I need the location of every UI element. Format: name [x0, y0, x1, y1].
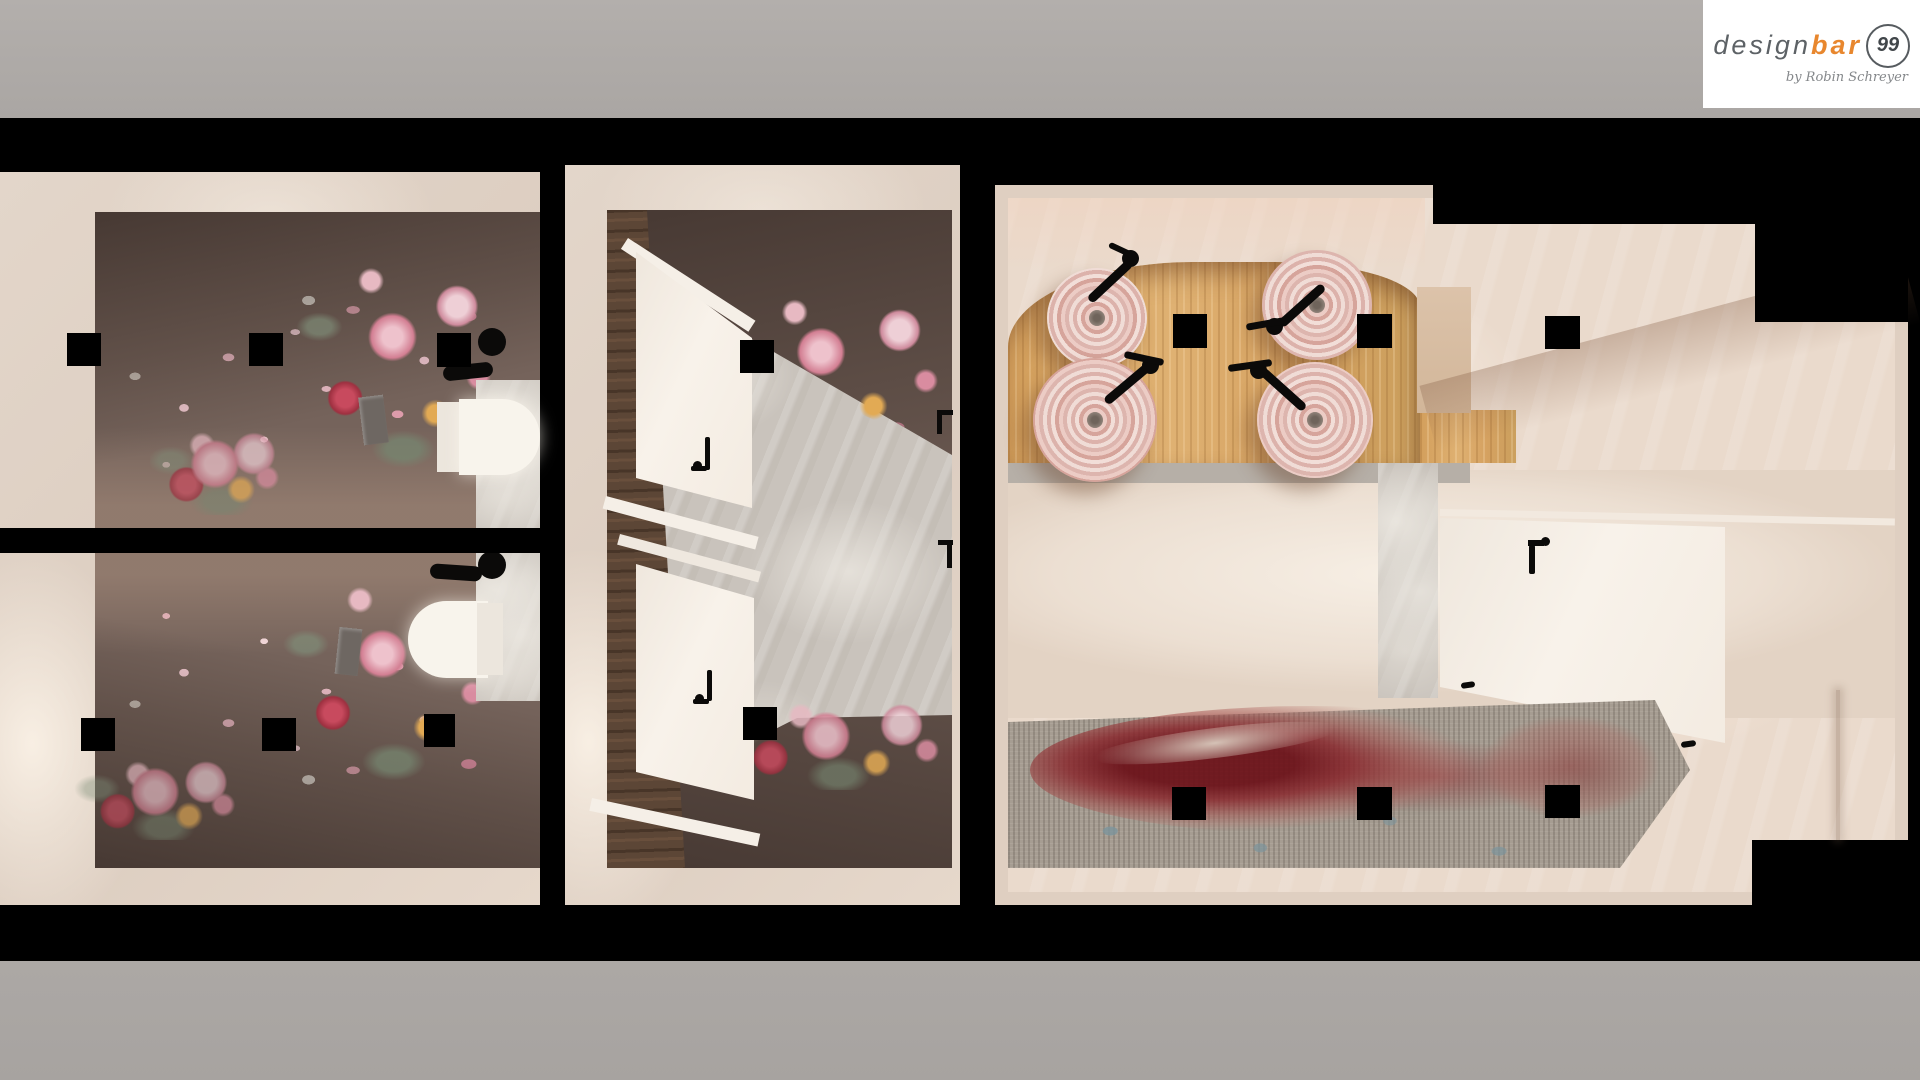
- ceiling-light-square: [1357, 314, 1392, 348]
- logo-designbar99: design bar 99 by Robin Schreyer: [1703, 0, 1920, 108]
- floral-wallpaper-cluster: [270, 556, 495, 801]
- toilet-roll-holder: [478, 551, 506, 579]
- flush-plate: [335, 627, 363, 676]
- door-handle: [1541, 537, 1550, 546]
- logo-word-design: design: [1713, 30, 1811, 61]
- ceiling-light-square: [67, 333, 101, 366]
- ceiling-light-square: [1172, 787, 1206, 820]
- door-handle: [693, 461, 702, 470]
- toilet-bowl: [408, 601, 488, 678]
- ceiling-light-square: [437, 333, 471, 367]
- ceiling-light-square: [740, 340, 774, 373]
- render-canvas: design bar 99 by Robin Schreyer: [0, 0, 1920, 1080]
- door-handle: [695, 694, 704, 703]
- toilet-bowl: [459, 399, 540, 475]
- floral-wallpaper-cluster: [150, 430, 280, 515]
- ceiling-light-square: [1357, 787, 1392, 820]
- edge-door-handle: [937, 414, 942, 434]
- ceiling-light-square: [1545, 785, 1580, 818]
- ceiling-light-square: [424, 714, 455, 747]
- wall-notch: [1755, 185, 1908, 322]
- ceiling-light-square: [1545, 316, 1580, 349]
- logo-number-badge: 99: [1866, 24, 1910, 68]
- ceiling-light-square: [81, 718, 115, 751]
- logo-byline: by Robin Schreyer: [1786, 70, 1908, 85]
- white-door-bottom: [636, 558, 754, 802]
- vessel-sink: [1262, 250, 1372, 360]
- ceiling-light-square: [262, 718, 296, 751]
- wall-notch: [1752, 840, 1908, 905]
- door-handle: [707, 670, 712, 701]
- ceiling-light-square: [249, 333, 283, 366]
- wall-corner-shadow: [1836, 690, 1840, 840]
- bottom-gray-band: [0, 961, 1920, 1080]
- ceiling-light-square: [743, 707, 777, 740]
- floral-wallpaper-cluster: [70, 760, 240, 840]
- logo-word-bar: bar: [1811, 30, 1862, 61]
- edge-door-handle: [947, 544, 952, 568]
- door-handle: [1529, 545, 1535, 574]
- logo-number: 99: [1877, 34, 1899, 57]
- top-gray-band: [0, 0, 1920, 118]
- logo-wordmark: design bar 99: [1713, 24, 1910, 68]
- toilet-roll-holder: [478, 328, 506, 356]
- toilet-tank: [477, 603, 503, 675]
- stall-divider-wall: [0, 528, 540, 553]
- door-handle: [705, 437, 710, 470]
- alcove-side-wall: [1378, 463, 1438, 698]
- ceiling-light-square: [1173, 314, 1207, 348]
